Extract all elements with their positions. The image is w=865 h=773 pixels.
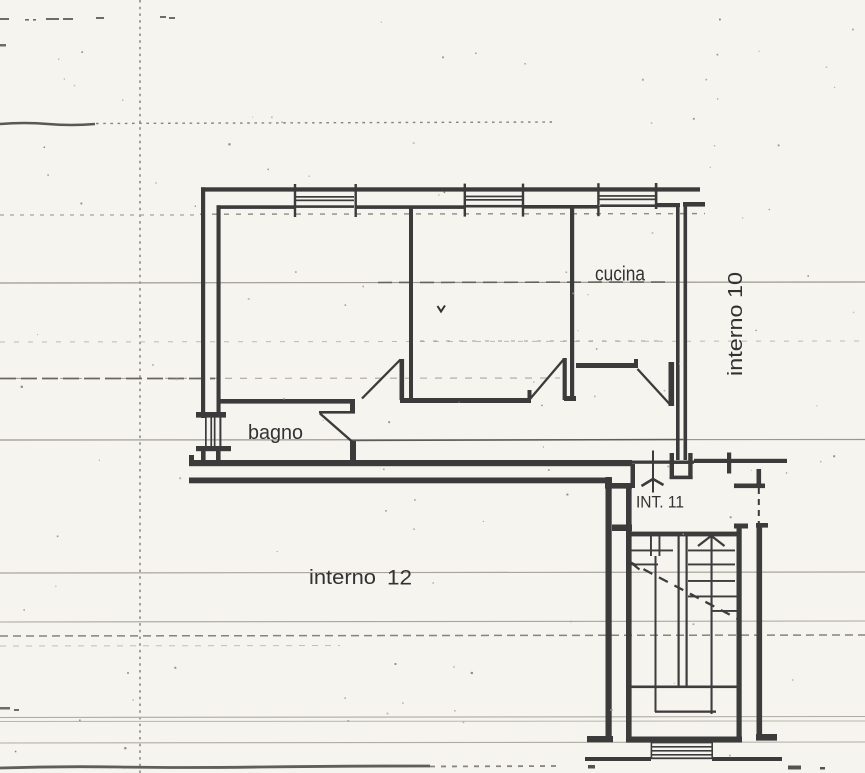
- svg-text:interno 10: interno 10: [725, 272, 747, 376]
- svg-text:cucina: cucina: [595, 264, 646, 286]
- svg-text:bagno: bagno: [248, 422, 303, 444]
- svg-text:INT. 11: INT. 11: [636, 493, 684, 512]
- svg-text:interno: interno: [309, 567, 376, 589]
- svg-text:12: 12: [387, 567, 412, 590]
